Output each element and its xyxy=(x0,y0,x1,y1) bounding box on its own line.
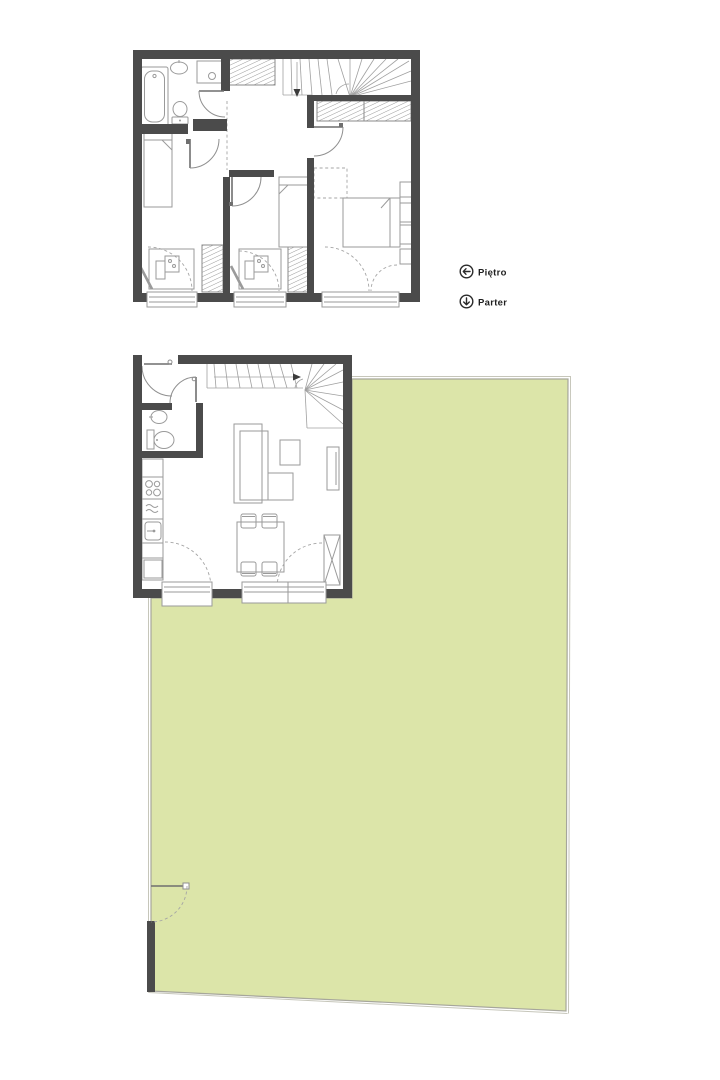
arrow-left-circle-icon xyxy=(460,265,473,278)
bed-left-icon xyxy=(144,131,172,207)
wardrobe-bedroom-middle-icon xyxy=(288,246,308,292)
upper-floor-label: Piętro xyxy=(478,268,507,279)
floor-plan-canvas: Piętro Parter xyxy=(0,0,720,1080)
storage-x-icon xyxy=(324,535,340,585)
nav-ground-floor[interactable]: Parter xyxy=(460,295,507,308)
arrow-down-circle-icon xyxy=(460,295,473,308)
wardrobe-bedroom-right-icon xyxy=(317,101,411,121)
nav-upper-floor[interactable]: Piętro xyxy=(460,265,507,278)
wardrobe-hall-icon xyxy=(223,59,275,85)
wardrobe-bedroom-left-icon xyxy=(202,245,223,292)
upper-floor-plan xyxy=(133,50,420,307)
windows-upper xyxy=(147,292,399,307)
ground-floor-plan xyxy=(133,355,352,606)
ground-floor-label: Parter xyxy=(478,298,507,309)
windows-ground xyxy=(162,582,326,606)
legend: Piętro Parter xyxy=(460,265,507,308)
floor-plan-page: Piętro Parter xyxy=(0,0,720,1080)
bed-middle-icon xyxy=(279,177,308,247)
